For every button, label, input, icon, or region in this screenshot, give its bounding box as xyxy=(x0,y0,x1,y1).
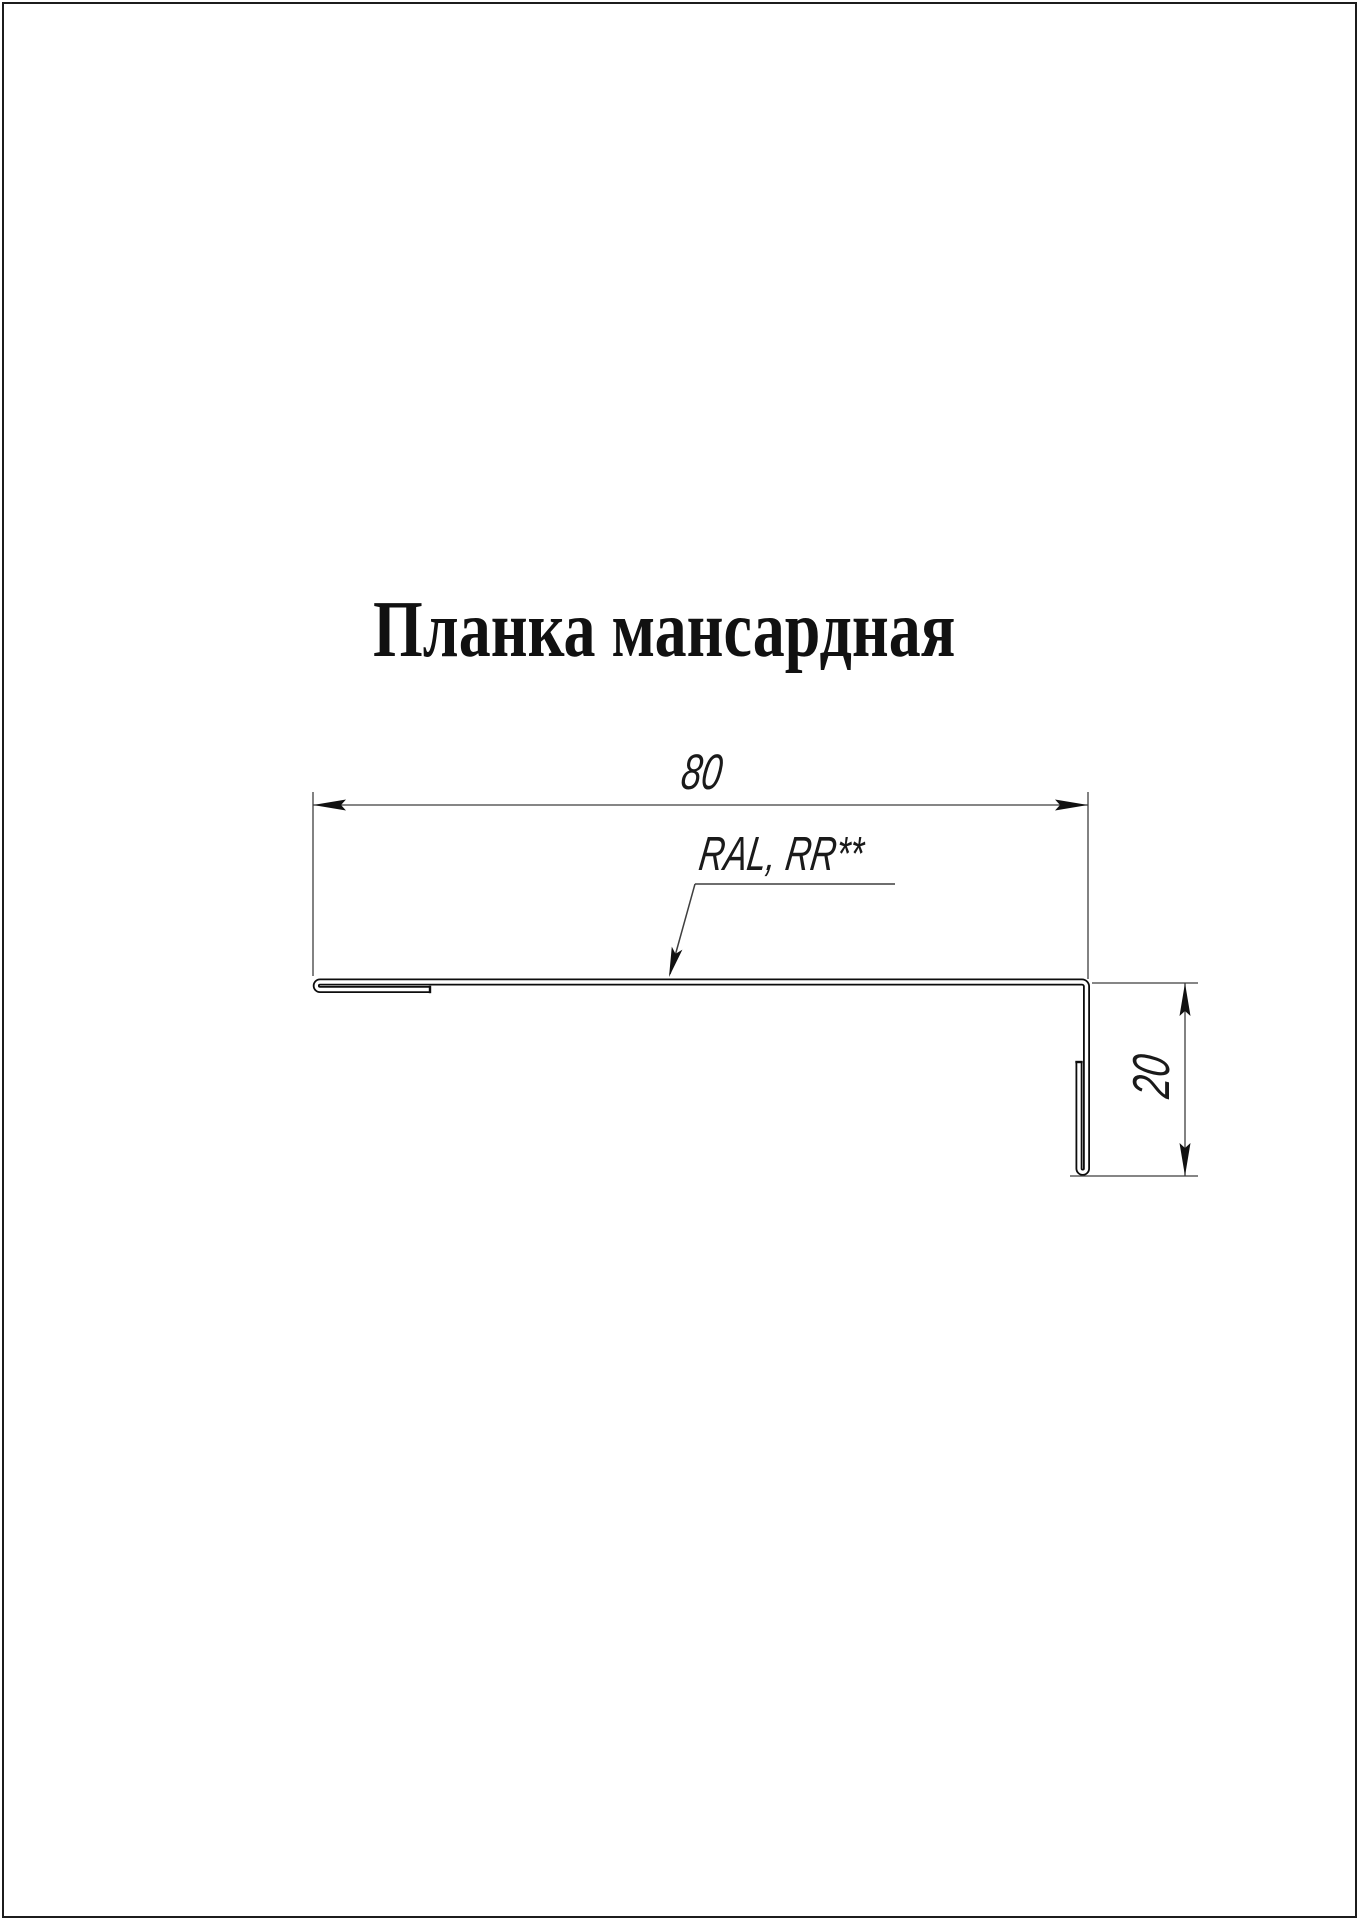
coating-leader xyxy=(669,884,895,977)
height-dimension xyxy=(1180,983,1191,1176)
profile-outline-outer xyxy=(316,982,1086,1172)
profile-outline-inner xyxy=(316,982,1086,1172)
drawing-page: { "page": { "title": "Планка мансардная"… xyxy=(0,0,1359,1920)
width-dimension xyxy=(313,800,1088,811)
technical-drawing-canvas xyxy=(0,0,1359,1920)
profile-cross-section xyxy=(316,982,1086,1172)
